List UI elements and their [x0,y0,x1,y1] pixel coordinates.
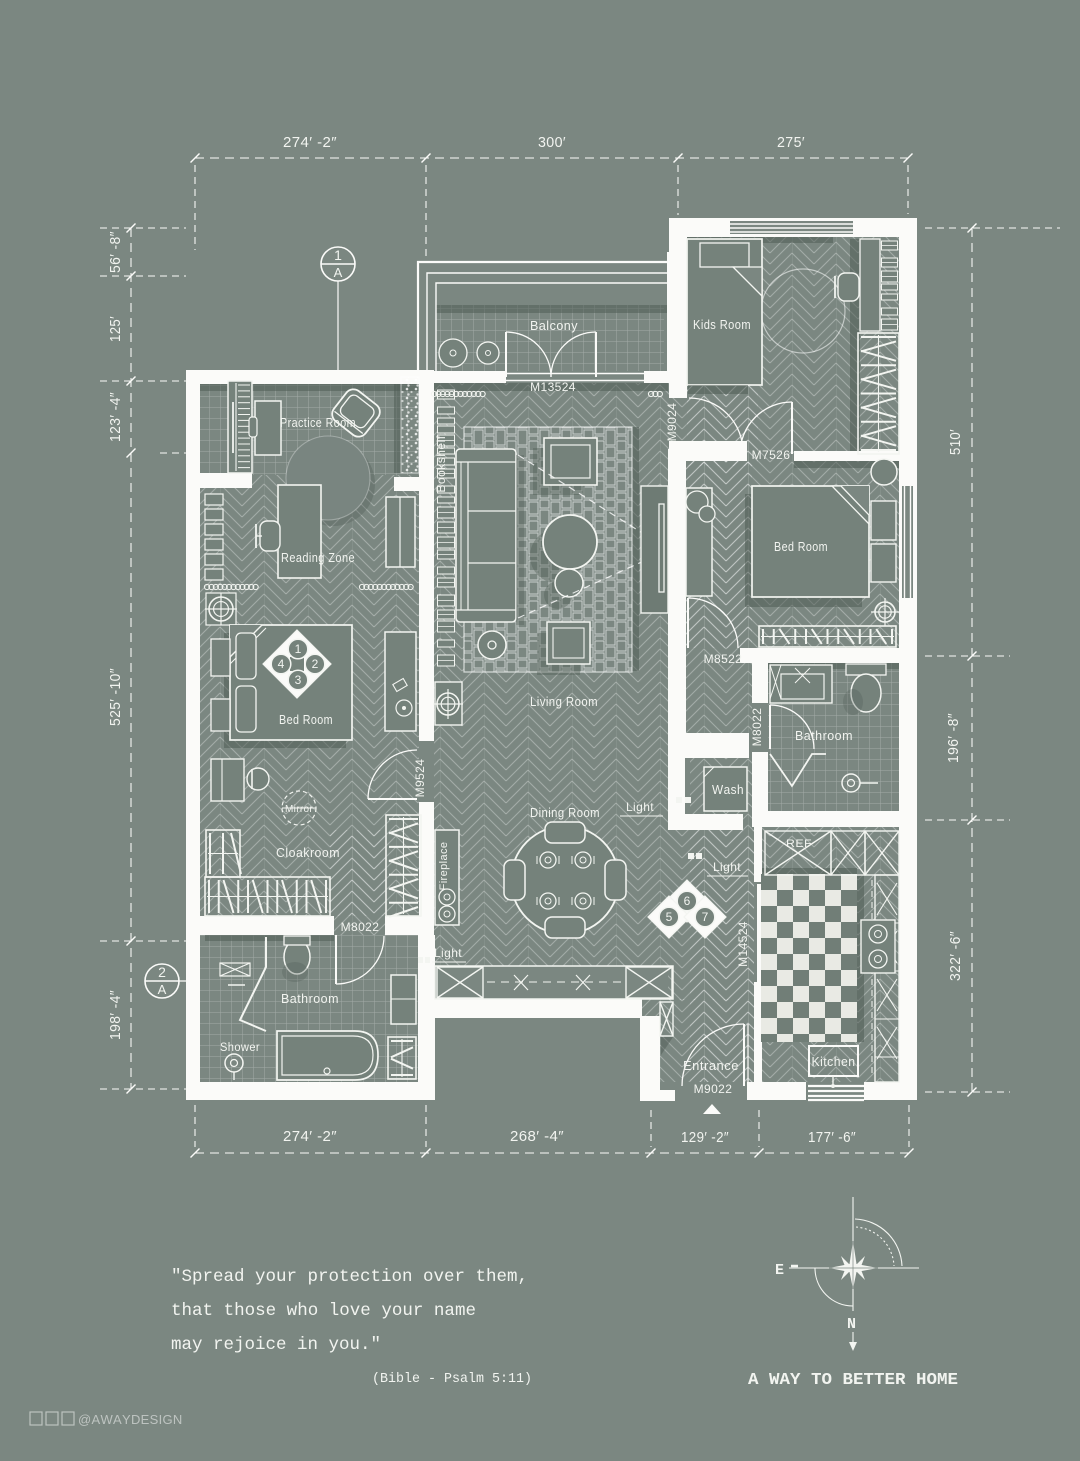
svg-text:300′: 300′ [538,135,566,151]
svg-text:M8522: M8522 [704,652,743,666]
svg-text:Kitchen: Kitchen [812,1054,856,1069]
svg-text:Fireplace: Fireplace [438,842,450,891]
svg-text:"Spread your protection over t: "Spread your protection over them, [171,1267,528,1287]
svg-text:Bed Room: Bed Room [279,712,333,727]
svg-text:1: 1 [334,247,342,263]
svg-text:2: 2 [312,657,319,671]
svg-text:A: A [334,265,343,280]
svg-text:may rejoice in you.": may rejoice in you." [171,1335,381,1355]
svg-text:Light: Light [434,946,462,960]
svg-text:Light: Light [626,800,654,814]
svg-text:M9022: M9022 [694,1082,733,1096]
svg-text:Dining Room: Dining Room [530,805,600,820]
svg-text:1: 1 [295,642,302,656]
svg-text:56′ -8″: 56′ -8″ [108,231,124,273]
svg-text:M13524: M13524 [530,380,576,394]
svg-text:129′ -2″: 129′ -2″ [681,1130,729,1146]
svg-text:Balcony: Balcony [530,318,578,333]
svg-text:274′ -2″: 274′ -2″ [283,1129,337,1145]
svg-text:123′ -4″: 123′ -4″ [108,392,124,442]
svg-text:5: 5 [666,910,673,924]
svg-text:M14524: M14524 [736,921,750,967]
svg-text:Mirror: Mirror [285,804,313,815]
svg-text:510′: 510′ [948,429,964,455]
svg-text:N: N [847,1316,857,1333]
svg-text:274′ -2″: 274′ -2″ [283,135,337,151]
svg-text:(Bible - Psalm 5:11): (Bible - Psalm 5:11) [372,1371,532,1387]
svg-text:Reading Zone: Reading Zone [281,550,355,565]
svg-text:Practice Room: Practice Room [280,415,356,430]
svg-text:Bookshelf: Bookshelf [434,435,448,492]
svg-text:Entrance: Entrance [683,1058,739,1073]
svg-text:Living Room: Living Room [530,694,598,709]
svg-text:@AWAYDESIGN: @AWAYDESIGN [78,1412,183,1427]
svg-text:196′ -8″: 196′ -8″ [946,713,962,763]
svg-text:M8022: M8022 [750,708,764,747]
svg-text:Cloakroom: Cloakroom [276,845,340,860]
svg-text:2: 2 [158,964,166,980]
svg-text:REF: REF [786,838,812,850]
svg-text:4: 4 [278,657,285,671]
svg-text:M7526: M7526 [752,448,791,462]
svg-text:177′ -6″: 177′ -6″ [808,1130,856,1146]
svg-text:125′: 125′ [108,316,124,342]
svg-text:7: 7 [702,910,709,924]
svg-text:M8022: M8022 [341,920,380,934]
svg-text:198′ -4″: 198′ -4″ [108,990,124,1040]
svg-text:Bed Room: Bed Room [774,539,828,554]
svg-text:3: 3 [295,673,302,687]
svg-text:Wash: Wash [712,782,744,797]
svg-text:A WAY TO BETTER HOME: A WAY TO BETTER HOME [748,1370,958,1389]
svg-text:322′ -6″: 322′ -6″ [948,931,964,981]
svg-text:Bathroom: Bathroom [795,728,853,743]
svg-text:268′ -4″: 268′ -4″ [510,1129,564,1145]
svg-text:E: E [775,1262,785,1279]
svg-text:A: A [158,982,167,997]
svg-text:Shower: Shower [220,1042,260,1054]
svg-text:that those who love your name: that those who love your name [171,1301,476,1321]
svg-text:Light: Light [713,860,741,874]
svg-text:6: 6 [684,894,691,908]
svg-text:Kids Room: Kids Room [693,317,751,332]
svg-text:525′ -10″: 525′ -10″ [108,668,124,726]
svg-text:Bathroom: Bathroom [281,991,339,1006]
svg-text:275′: 275′ [777,135,805,151]
svg-text:M9524: M9524 [413,759,427,798]
svg-text:M9024: M9024 [665,403,679,442]
